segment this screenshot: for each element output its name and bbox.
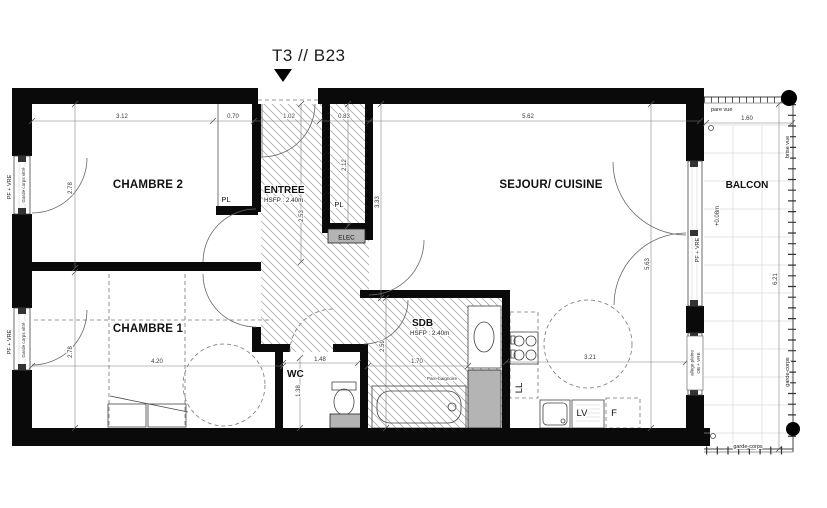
dim-sdb-width: 1.70 bbox=[411, 359, 423, 365]
floor-plan-page: T3 // B23 bbox=[0, 0, 827, 508]
room-label-sdb: SDB bbox=[412, 318, 433, 329]
room-label-chambre2: CHAMBRE 2 bbox=[113, 179, 183, 191]
wc-fixtures bbox=[330, 382, 362, 428]
dim-entree-depth: 2.53 bbox=[299, 210, 305, 222]
window-label-pf-vre: PF + VRE bbox=[7, 174, 13, 199]
window-chambre1-swing bbox=[32, 310, 87, 365]
room-label-chambre1: CHAMBRE 1 bbox=[113, 323, 184, 335]
dim-sejour-right: 5.63 bbox=[645, 258, 651, 270]
dim-chambre2-width: 3.12 bbox=[116, 114, 128, 120]
french-door-balcony bbox=[688, 161, 702, 306]
round-furniture-outline bbox=[183, 344, 265, 426]
dim-chambre2-closet: 0.70 bbox=[227, 114, 239, 120]
dining-table-outline bbox=[544, 300, 632, 388]
washbasin bbox=[468, 306, 501, 368]
dim-chambre1-depth: 2.78 bbox=[68, 346, 74, 358]
elec-label: ELEC bbox=[338, 235, 355, 242]
dim-chambre2-depth: 2.78 bbox=[68, 182, 74, 194]
chambre1-door-arc bbox=[203, 274, 256, 327]
svg-text:allège pleine: allège pleine bbox=[690, 350, 695, 376]
dim-closet-width: 0.83 bbox=[338, 114, 350, 120]
washer-label: LL bbox=[514, 383, 525, 394]
sejour-door-arc bbox=[369, 240, 424, 295]
room-label-entree: ENTREE bbox=[264, 185, 305, 196]
chambre2-door-arc bbox=[203, 209, 256, 262]
column bbox=[786, 422, 800, 436]
dim-entree-width: 1.02 bbox=[283, 114, 295, 120]
garde-corps-label-bottom: garde-corps bbox=[733, 444, 763, 450]
dim-sejour-left: 3.33 bbox=[375, 196, 381, 208]
svg-text:OB + VRE: OB + VRE bbox=[696, 352, 701, 373]
plan-title: T3 // B23 bbox=[272, 46, 345, 65]
window-note-garde-corps-vitre: Garde corps vitré bbox=[21, 322, 26, 358]
dim-sejour-width: 5.62 bbox=[522, 114, 534, 120]
kitchen-sink bbox=[540, 400, 570, 428]
duct-box bbox=[330, 414, 362, 428]
dim-wc-depth: 1.38 bbox=[296, 385, 302, 397]
dim-chambre1-width: 4.20 bbox=[151, 359, 163, 365]
brise-vue-label: brise vue bbox=[785, 136, 791, 158]
dim-wc-width: 1.48 bbox=[314, 357, 326, 363]
room-label-balcon: BALCON bbox=[726, 180, 769, 191]
closet-label-chambre2: PL bbox=[221, 195, 230, 204]
duct-box bbox=[468, 370, 501, 428]
entry-arrow-icon bbox=[274, 69, 292, 82]
column bbox=[781, 90, 797, 106]
dim-cuisine-width: 3.21 bbox=[584, 355, 596, 361]
room-label-sejour: SEJOUR/ CUISINE bbox=[499, 179, 602, 191]
bath-screen-label: Pare-baignoire bbox=[427, 376, 458, 381]
window-label-pf-vre: PF + VRE bbox=[7, 329, 13, 354]
dim-sdb-depth: 2.59 bbox=[380, 340, 386, 352]
dim-balcon-width: 1.60 bbox=[741, 116, 753, 122]
dishwasher-label: LV bbox=[577, 408, 589, 419]
room-label-wc: WC bbox=[287, 369, 304, 380]
allege-window-label: allège pleine OB + VRE bbox=[687, 336, 703, 390]
floor-plan-drawing: T3 // B23 bbox=[0, 0, 827, 508]
closet-label-entree: PL bbox=[334, 200, 343, 209]
garde-corps-label-side: garde-corps bbox=[785, 357, 791, 387]
sdb-height-note: HSFP : 2.40m bbox=[410, 330, 449, 337]
balcony-door-swing bbox=[613, 162, 686, 235]
entree-height-note: HSFP : 2.40m bbox=[264, 197, 303, 204]
dim-balcon-length: 6.21 bbox=[773, 273, 779, 285]
wardrobe-block bbox=[108, 404, 146, 427]
kitchen-fixtures bbox=[510, 300, 640, 428]
window-label-pf-vre: PF + VRE bbox=[695, 237, 701, 262]
toilet bbox=[334, 389, 354, 415]
balcony-level-label: +0.08m bbox=[715, 206, 721, 226]
fridge-label: F bbox=[611, 408, 617, 419]
pare-vue-label: pare vue bbox=[711, 107, 732, 113]
window-note-garde-corps-vitre: Garde corps vitré bbox=[21, 167, 26, 203]
dim-closet-depth: 2.12 bbox=[342, 159, 348, 171]
window-chambre2-swing bbox=[32, 158, 87, 213]
